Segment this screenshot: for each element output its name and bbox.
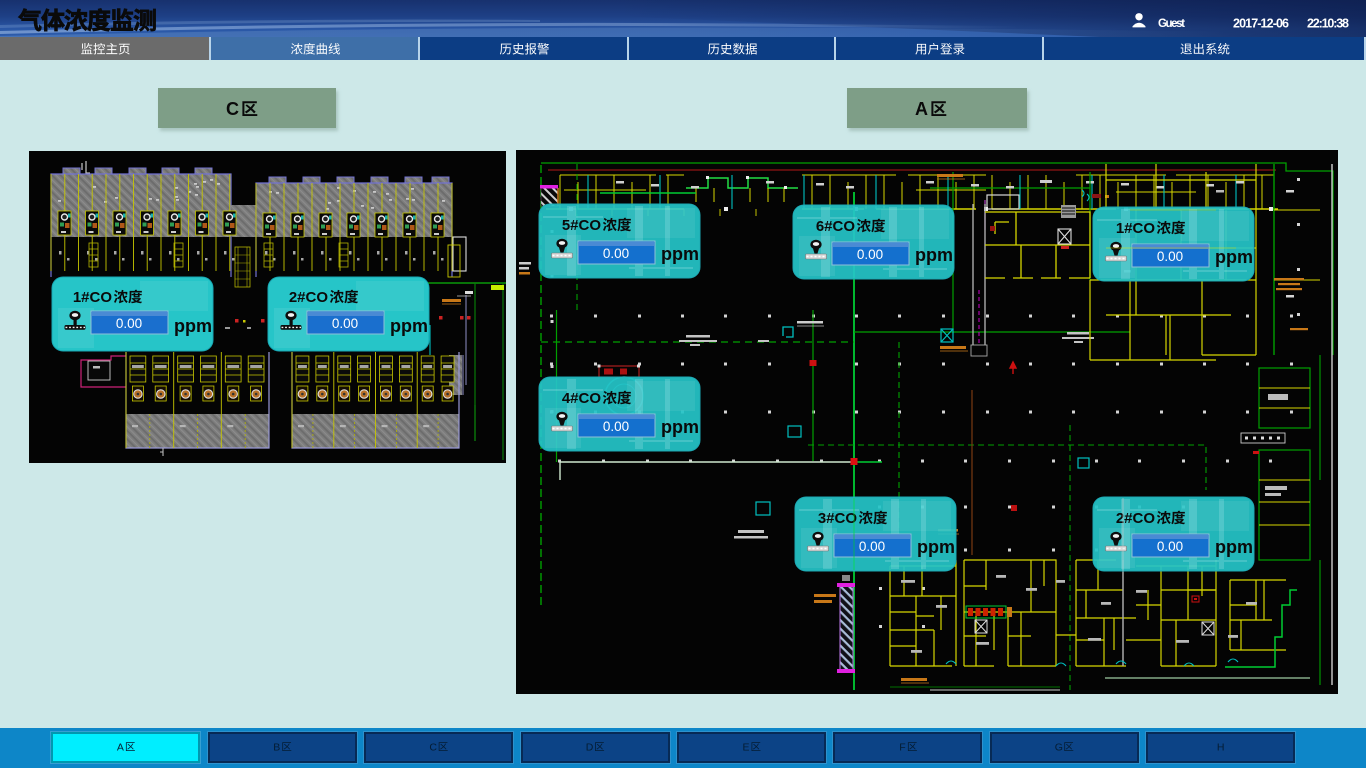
svg-text:ppm: ppm <box>390 316 428 336</box>
svg-text:6#CO: 6#CO <box>816 218 856 235</box>
svg-text:2#CO: 2#CO <box>1116 510 1156 527</box>
svg-text:ppm: ppm <box>1215 537 1253 557</box>
svg-text:2#CO: 2#CO <box>289 289 329 306</box>
svg-text:0.00: 0.00 <box>332 316 358 331</box>
svg-text:4#CO: 4#CO <box>562 390 602 407</box>
svg-text:ppm: ppm <box>661 244 699 264</box>
svg-text:ppm: ppm <box>174 316 212 336</box>
svg-text:ppm: ppm <box>1215 247 1253 267</box>
svg-text:0.00: 0.00 <box>1157 539 1183 554</box>
svg-text:1#CO: 1#CO <box>73 289 113 306</box>
svg-text:ppm: ppm <box>661 417 699 437</box>
svg-text:0.00: 0.00 <box>1157 249 1183 264</box>
svg-text:0.00: 0.00 <box>859 539 885 554</box>
svg-text:0.00: 0.00 <box>116 316 142 331</box>
svg-text:0.00: 0.00 <box>603 246 629 261</box>
svg-text:ppm: ppm <box>917 537 955 557</box>
svg-text:ppm: ppm <box>915 245 953 265</box>
svg-text:3#CO: 3#CO <box>818 510 858 527</box>
svg-text:1#CO: 1#CO <box>1116 220 1156 237</box>
svg-text:0.00: 0.00 <box>857 247 883 262</box>
svg-text:0.00: 0.00 <box>603 419 629 434</box>
svg-text:5#CO: 5#CO <box>562 217 602 234</box>
